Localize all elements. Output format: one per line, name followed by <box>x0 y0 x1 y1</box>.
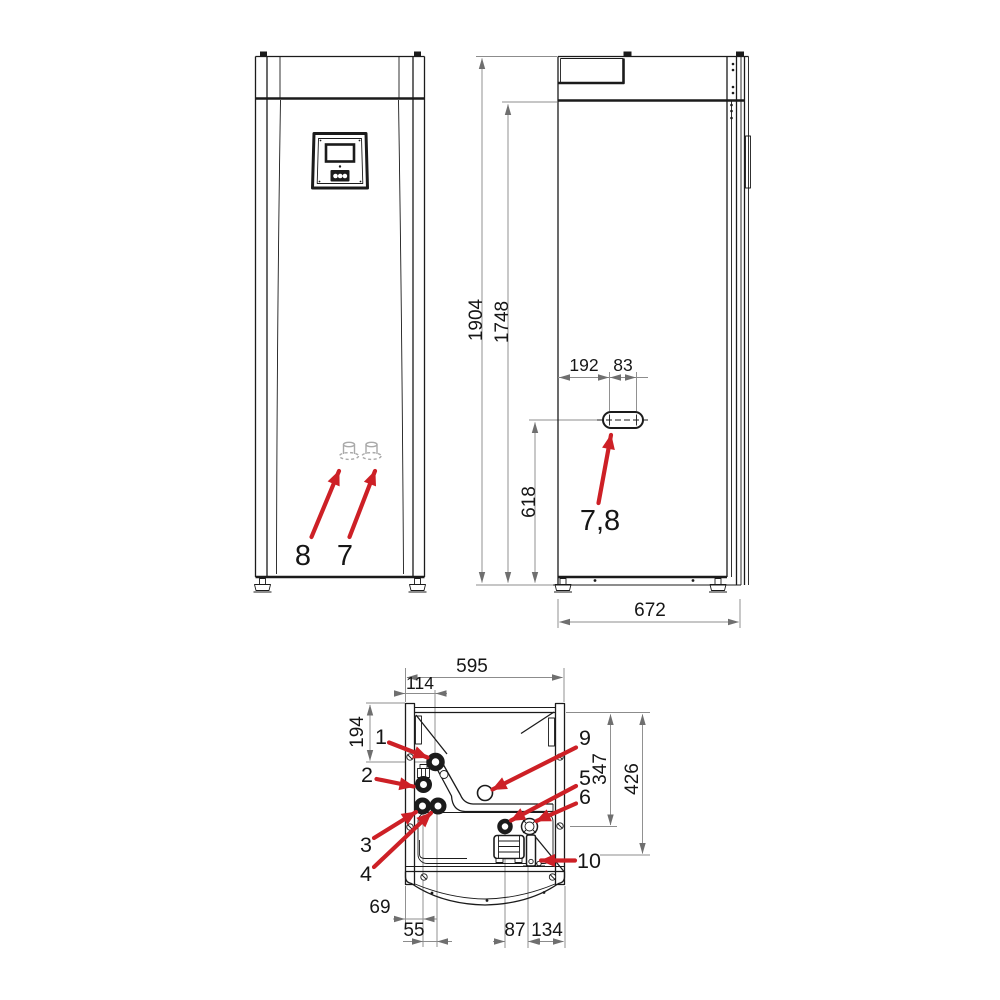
front-top-tab-left <box>260 52 267 57</box>
bottom-components <box>417 756 565 872</box>
front-view: 8 7 <box>254 52 427 593</box>
dim-label-595: 595 <box>456 656 488 677</box>
dim-label-83: 83 <box>613 355 632 375</box>
bottom-view: 595 114 194 347 426 69 55 87 134 1 2 3 4… <box>347 656 650 948</box>
control-buttons <box>331 170 350 182</box>
connection-3 <box>417 800 429 812</box>
side-knockout-slot <box>597 412 649 428</box>
dim-label-1748: 1748 <box>492 301 513 343</box>
dim-label-134: 134 <box>531 920 563 941</box>
dim-label-114: 114 <box>406 673 434 693</box>
side-callouts: 7,8 <box>580 435 620 537</box>
connection-2 <box>418 779 430 791</box>
callout-arrow-7 <box>350 471 376 537</box>
dim-label-672: 672 <box>634 600 666 621</box>
callout-arrow-7-8 <box>599 435 612 503</box>
front-pipe-stub-right <box>362 442 381 459</box>
callout-label-3: 3 <box>360 833 372 857</box>
callout-label-2: 2 <box>361 763 373 787</box>
callout-label-7-8: 7,8 <box>580 505 620 537</box>
connection-5 <box>500 821 511 832</box>
front-top-tab-right <box>414 52 421 57</box>
dim-label-194: 194 <box>347 716 368 748</box>
front-callouts: 8 7 <box>295 471 375 572</box>
drawing-page: 8 7 <box>0 0 1000 1000</box>
dim-label-1904: 1904 <box>466 298 487 341</box>
callout-label-9: 9 <box>579 726 591 750</box>
compressor <box>494 836 524 863</box>
dim-label-55: 55 <box>403 920 424 941</box>
dim-label-69: 69 <box>369 897 390 918</box>
callout-arrow-8 <box>312 471 340 537</box>
callout-label-1: 1 <box>375 725 387 749</box>
front-feet <box>254 579 427 593</box>
callout-label-4: 4 <box>360 862 372 886</box>
callout-label-6: 6 <box>579 785 591 809</box>
side-top-tab-left <box>624 52 632 57</box>
connection-4 <box>432 800 444 812</box>
dim-label-87: 87 <box>504 920 525 941</box>
callout-label-10: 10 <box>577 849 601 873</box>
display-screen <box>326 145 354 162</box>
front-pipe-stub-left <box>340 442 359 459</box>
dim-label-426: 426 <box>622 763 643 795</box>
callout-label-8: 8 <box>295 540 311 572</box>
dim-label-618: 618 <box>519 486 540 518</box>
callout-arrow-5 <box>511 786 576 821</box>
side-rear-bracket <box>746 136 751 188</box>
side-panel-screws <box>730 63 734 120</box>
side-view: 1904 1748 618 192 83 672 7,8 <box>466 52 751 629</box>
pipe-elbow-run <box>443 764 553 804</box>
opening-9 <box>478 786 493 801</box>
dim-label-192: 192 <box>569 355 598 375</box>
connection-1 <box>429 756 442 769</box>
side-extension-lines <box>476 57 740 629</box>
dim-label-347: 347 <box>590 753 611 785</box>
side-top-tab-right <box>736 52 744 57</box>
control-panel <box>313 134 368 189</box>
side-dimensions: 1904 1748 618 192 83 672 <box>466 59 739 623</box>
technical-drawing-canvas: 8 7 <box>0 0 1000 1000</box>
callout-label-7: 7 <box>337 540 353 572</box>
